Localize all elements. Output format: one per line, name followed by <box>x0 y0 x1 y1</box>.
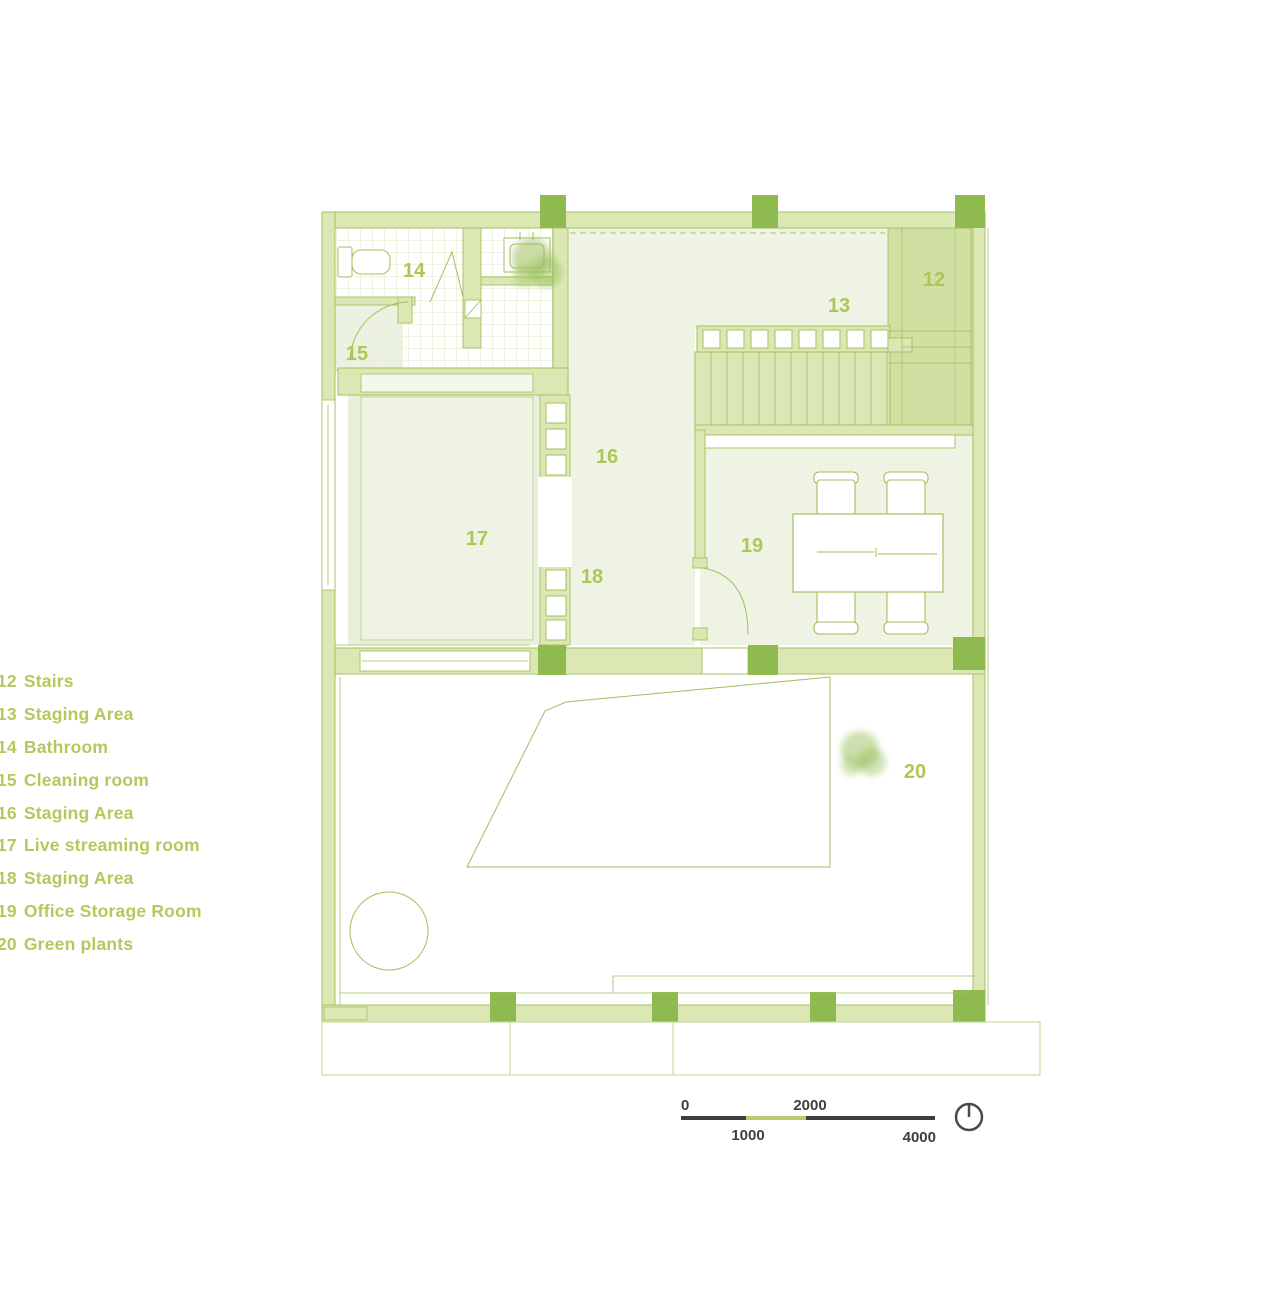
scale-label-0: 0 <box>681 1097 689 1114</box>
toilet-icon <box>338 247 390 277</box>
shelf-gap <box>538 477 572 567</box>
legend-item-office-storage-room: 19Office Storage Room <box>0 895 202 928</box>
terrace <box>340 677 975 1005</box>
compass-icon <box>956 1104 982 1130</box>
column <box>748 645 778 675</box>
door-jamb <box>693 558 707 568</box>
legend-label: Staging Area <box>24 704 134 725</box>
room-label-19: 19 <box>741 535 763 557</box>
legend-label: Stairs <box>24 671 74 692</box>
legend-item-staging-area-18: 18Staging Area <box>0 862 202 895</box>
legend-label: Green plants <box>24 934 133 955</box>
scale-label-1000: 1000 <box>731 1127 764 1144</box>
legend-label: Live streaming room <box>24 835 200 856</box>
room-label-18: 18 <box>581 566 603 588</box>
legend-item-bathroom: 14Bathroom <box>0 731 202 764</box>
scale-bar: 0 2000 1000 4000 <box>681 1097 936 1146</box>
legend-number: 14 <box>0 737 17 758</box>
legend-number: 17 <box>0 835 17 856</box>
round-table-icon <box>350 892 428 970</box>
legend-label: Staging Area <box>24 803 134 824</box>
legend-label: Bathroom <box>24 737 108 758</box>
column <box>652 992 678 1022</box>
room-label-15: 15 <box>346 343 368 365</box>
scale-label-4000: 4000 <box>903 1129 936 1146</box>
room-label-12: 12 <box>923 269 945 291</box>
room-label-14: 14 <box>403 260 426 282</box>
room-label-16: 16 <box>596 446 618 468</box>
column <box>955 195 985 228</box>
terrace-canopy-outline <box>467 677 830 867</box>
door-jamb <box>398 297 412 323</box>
room-label-17: 17 <box>466 528 488 550</box>
legend-item-staging-area-16: 16Staging Area <box>0 797 202 830</box>
staging-shelf-row <box>697 326 912 352</box>
column <box>752 195 778 228</box>
legend-number: 19 <box>0 901 17 922</box>
room-label-20: 20 <box>904 761 926 783</box>
column <box>953 990 985 1022</box>
legend-label: Office Storage Room <box>24 901 202 922</box>
legend-number: 18 <box>0 868 17 889</box>
legend-label: Cleaning room <box>24 770 149 791</box>
door-jamb <box>693 628 707 640</box>
tree-icon <box>841 731 886 776</box>
window <box>702 648 748 674</box>
floor-plan-drawing: 12 13 14 15 16 17 18 19 20 0 2000 1000 4… <box>0 0 1280 1302</box>
legend-item-staging-area-13: 13Staging Area <box>0 698 202 731</box>
legend-number: 15 <box>0 770 17 791</box>
column <box>953 637 985 670</box>
floor-plan-sheet: 12Stairs 13Staging Area 14Bathroom 15Cle… <box>0 0 1280 1302</box>
legend-label: Staging Area <box>24 868 134 889</box>
scale-label-2000: 2000 <box>793 1097 826 1114</box>
column <box>810 992 836 1022</box>
window <box>322 400 335 590</box>
column <box>538 645 566 675</box>
legend: 12Stairs 13Staging Area 14Bathroom 15Cle… <box>0 665 202 961</box>
legend-number: 20 <box>0 934 17 955</box>
legend-number: 13 <box>0 704 17 725</box>
glass-partition <box>705 435 955 448</box>
column <box>540 195 566 228</box>
legend-number: 16 <box>0 803 17 824</box>
room-label-13: 13 <box>828 295 850 317</box>
legend-number: 12 <box>0 671 17 692</box>
lower-apron <box>322 1022 1040 1075</box>
legend-item-live-streaming-room: 17Live streaming room <box>0 829 202 862</box>
column <box>490 992 516 1022</box>
legend-item-green-plants: 20Green plants <box>0 928 202 961</box>
stairs-treads <box>695 352 890 428</box>
legend-item-stairs: 12Stairs <box>0 665 202 698</box>
legend-item-cleaning-room: 15Cleaning room <box>0 764 202 797</box>
